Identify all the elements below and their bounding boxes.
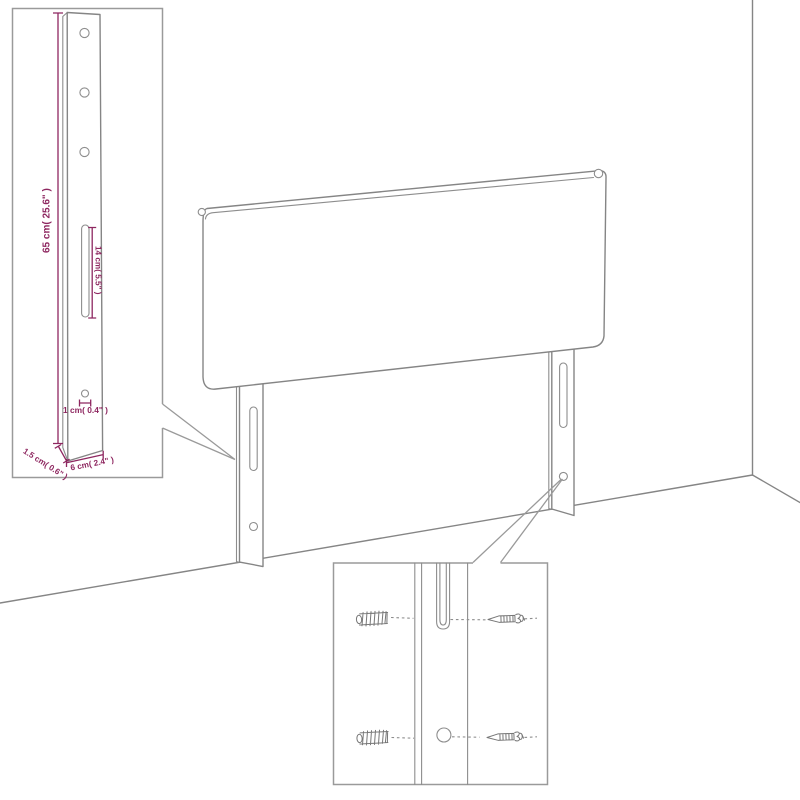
screw-bottom: [487, 732, 524, 742]
screw-top: [488, 614, 525, 624]
leader-screw-bottom-right: [525, 737, 538, 738]
headboard-top-left-curl: [198, 208, 205, 215]
inset-leg-hole-3: [80, 147, 89, 156]
diagram-canvas: 65 cm( 25.6" ) 14 cm( 5.5" ) 1 cm( 0.4" …: [0, 0, 800, 800]
inset-leg-hole-2: [80, 88, 89, 97]
hardware-hole: [437, 728, 451, 742]
leg-dimension-inset: 65 cm( 25.6" ) 14 cm( 5.5" ) 1 cm( 0.4" …: [13, 9, 163, 482]
wall-plug-bottom-threads: [359, 729, 389, 745]
inset-leg-hole-1: [80, 28, 89, 37]
dimension-label-leg-height: 65 cm( 25.6" ): [42, 188, 53, 253]
left-leg-slot: [250, 407, 257, 471]
leader-plug-top: [391, 618, 414, 619]
wall-plug-bottom-tip: [357, 734, 363, 743]
leader-screw-top-right: [525, 618, 538, 619]
headboard-panel-outline: [203, 171, 606, 389]
leader-plug-bottom: [392, 738, 415, 739]
hardware-inset-border: [334, 563, 548, 785]
left-leg-front-face: [240, 375, 264, 567]
right-leg-slot: [560, 363, 567, 428]
screw-top-shaft: [488, 615, 515, 622]
left-leg: [237, 375, 264, 567]
left-leg-hole: [250, 523, 258, 531]
screw-bottom-head: [515, 732, 524, 741]
hardware-slot-inner: [440, 563, 446, 625]
wall-plug-top: [356, 610, 388, 626]
wall-plug-bottom: [356, 729, 388, 745]
screw-top-head: [516, 614, 525, 623]
headboard-top-right-curl: [594, 169, 602, 177]
floor-line-left: [0, 475, 753, 603]
wall-plug-top-threads: [359, 610, 389, 626]
right-leg: [549, 344, 574, 516]
inset-leg-small-hole: [82, 390, 89, 397]
headboard-panel: [198, 169, 606, 389]
screw-bottom-shaft: [487, 733, 514, 740]
hardware-slot-outer: [437, 563, 450, 629]
headboard-diagram: 65 cm( 25.6" ) 14 cm( 5.5" ) 1 cm( 0.4" …: [0, 0, 800, 800]
floor-line-right: [753, 475, 800, 503]
hardware-leg-edges: [415, 563, 468, 785]
dimension-label-hole: 1 cm( 0.4" ): [63, 405, 108, 415]
hardware-inset: [334, 563, 548, 785]
dimension-line-leg-height: [53, 13, 63, 444]
callout-wedge-left-inset: [163, 404, 236, 460]
wall-plug-top-tip: [356, 615, 362, 624]
dimension-label-slot-length: 14 cm( 5.5" ): [94, 246, 103, 295]
inset-leg-slot: [82, 225, 89, 317]
